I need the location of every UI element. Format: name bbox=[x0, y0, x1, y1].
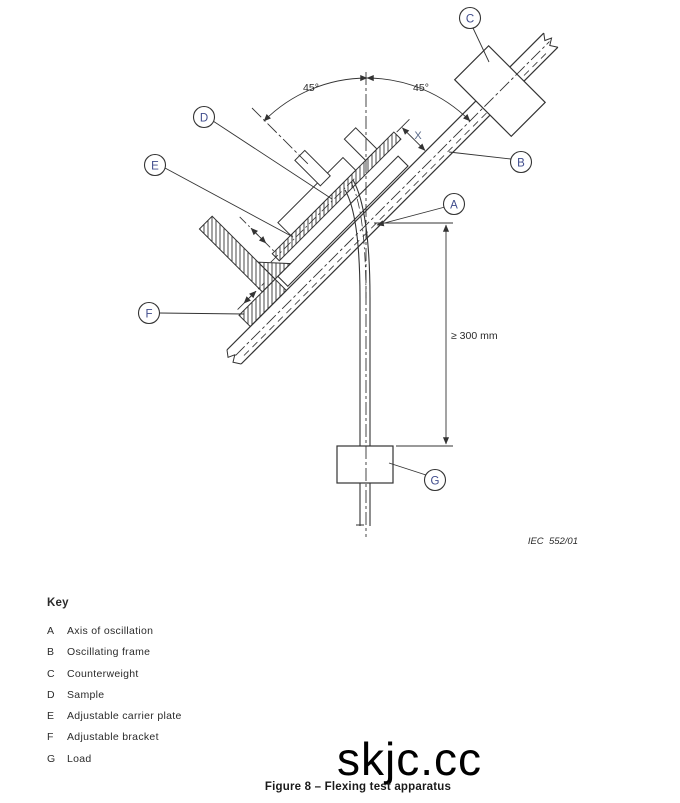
key-item-e: EAdjustable carrier plate bbox=[47, 708, 467, 729]
key-letter: B bbox=[47, 644, 67, 660]
key-label: Load bbox=[67, 753, 92, 765]
leader-E bbox=[165, 168, 293, 237]
callout-C: C bbox=[460, 8, 481, 29]
callout-F: F bbox=[139, 303, 160, 324]
key-label: Adjustable bracket bbox=[67, 731, 159, 743]
document-page: { "diagram": { "callouts": ["A", "B", "C… bbox=[0, 0, 680, 803]
load-block bbox=[337, 446, 393, 483]
key-label: Sample bbox=[67, 689, 104, 701]
oscillation-arc bbox=[264, 78, 470, 121]
callout-leaders bbox=[159, 28, 511, 475]
min-length-label: ≥ 300 mm bbox=[451, 330, 498, 342]
frame-centerline-group bbox=[235, 42, 549, 356]
callout-letter-E: E bbox=[151, 161, 159, 173]
callout-letter-A: A bbox=[450, 200, 458, 212]
key-item-b: BOscillating frame bbox=[47, 644, 467, 665]
callout-D: D bbox=[194, 107, 215, 128]
leader-A bbox=[377, 207, 445, 225]
callout-B: B bbox=[511, 152, 532, 173]
key-letter: E bbox=[47, 708, 67, 724]
key-label: Adjustable carrier plate bbox=[67, 710, 182, 722]
key-letter: D bbox=[47, 687, 67, 703]
leader-B bbox=[449, 152, 511, 159]
key-letter: A bbox=[47, 623, 67, 639]
key-letter: C bbox=[47, 666, 67, 682]
perpendicular-adjust-arrow bbox=[251, 228, 266, 243]
callout-letter-D: D bbox=[200, 113, 208, 125]
callout-G: G bbox=[425, 470, 446, 491]
frame-centerline bbox=[235, 42, 549, 356]
key-label: Oscillating frame bbox=[67, 646, 150, 658]
callout-E: E bbox=[145, 155, 166, 176]
watermark-text: skjc.cc bbox=[337, 735, 482, 783]
left-extreme-position-line bbox=[252, 108, 308, 164]
callout-letter-C: C bbox=[466, 14, 474, 26]
x-dimension-label: X bbox=[414, 130, 422, 142]
angle-left-label: 45° bbox=[303, 82, 319, 94]
cable-edge-left bbox=[345, 190, 360, 446]
leader-G bbox=[389, 463, 426, 475]
key-item-c: CCounterweight bbox=[47, 666, 467, 687]
key-item-d: DSample bbox=[47, 687, 467, 708]
leader-F bbox=[159, 313, 244, 314]
min-length-dimension bbox=[374, 223, 453, 446]
key-title: Key bbox=[47, 597, 467, 609]
iec-figure-ref: IEC 552/01 bbox=[528, 536, 578, 547]
callout-letter-G: G bbox=[431, 476, 440, 488]
flexing-test-apparatus-diagram: A B C D E F G 45° 45° X ≥ 300 mm IEC 55 bbox=[0, 0, 680, 560]
angle-right-label: 45° bbox=[413, 82, 429, 94]
key-item-a: AAxis of oscillation bbox=[47, 623, 467, 644]
callout-A: A bbox=[444, 194, 465, 215]
figure-caption: Figure 8 – Flexing test apparatus bbox=[18, 781, 680, 793]
key-letter: G bbox=[47, 751, 67, 767]
key-label: Counterweight bbox=[67, 668, 139, 680]
key-letter: F bbox=[47, 729, 67, 745]
callout-letter-B: B bbox=[517, 158, 525, 170]
callout-letter-F: F bbox=[145, 309, 152, 321]
key-label: Axis of oscillation bbox=[67, 625, 153, 637]
